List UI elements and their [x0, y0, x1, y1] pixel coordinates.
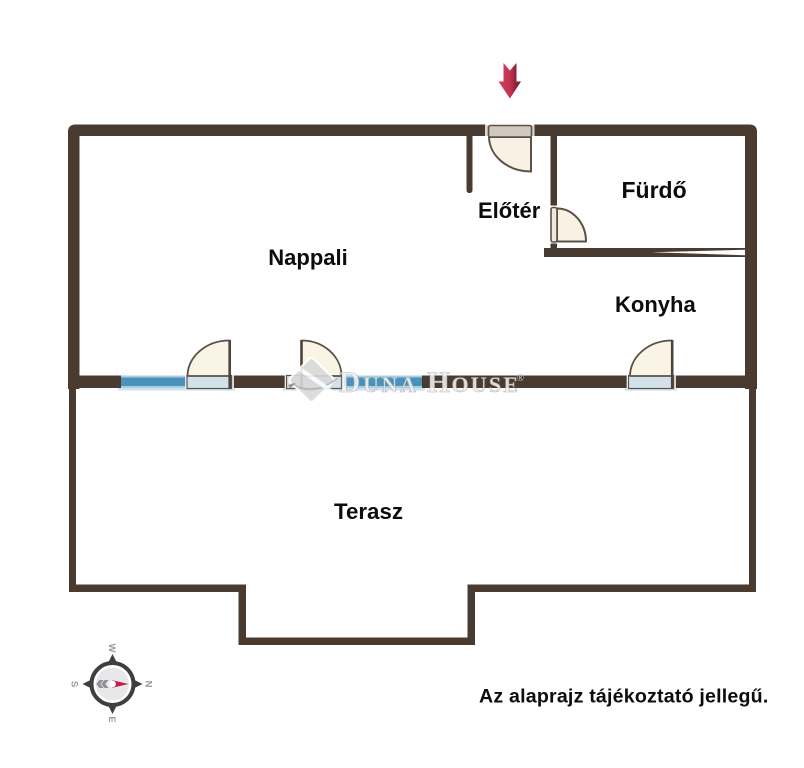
svg-text:OUSE: OUSE	[452, 372, 521, 397]
svg-text:UNA: UNA	[363, 372, 418, 397]
svg-text:Fürdő: Fürdő	[622, 177, 687, 203]
svg-text:D: D	[339, 367, 360, 399]
svg-text:S: S	[69, 681, 80, 687]
svg-text:Terasz: Terasz	[334, 499, 403, 524]
svg-text:Konyha: Konyha	[615, 292, 696, 317]
svg-text:Nappali: Nappali	[268, 245, 347, 270]
svg-text:E: E	[106, 716, 117, 722]
svg-text:®: ®	[517, 373, 525, 384]
svg-text:Az alaprajz tájékoztató jelleg: Az alaprajz tájékoztató jellegű.	[479, 686, 769, 708]
svg-text:W: W	[106, 644, 117, 653]
svg-text:N: N	[143, 681, 154, 688]
svg-text:Előtér: Előtér	[478, 198, 541, 223]
svg-text:H: H	[427, 367, 450, 399]
